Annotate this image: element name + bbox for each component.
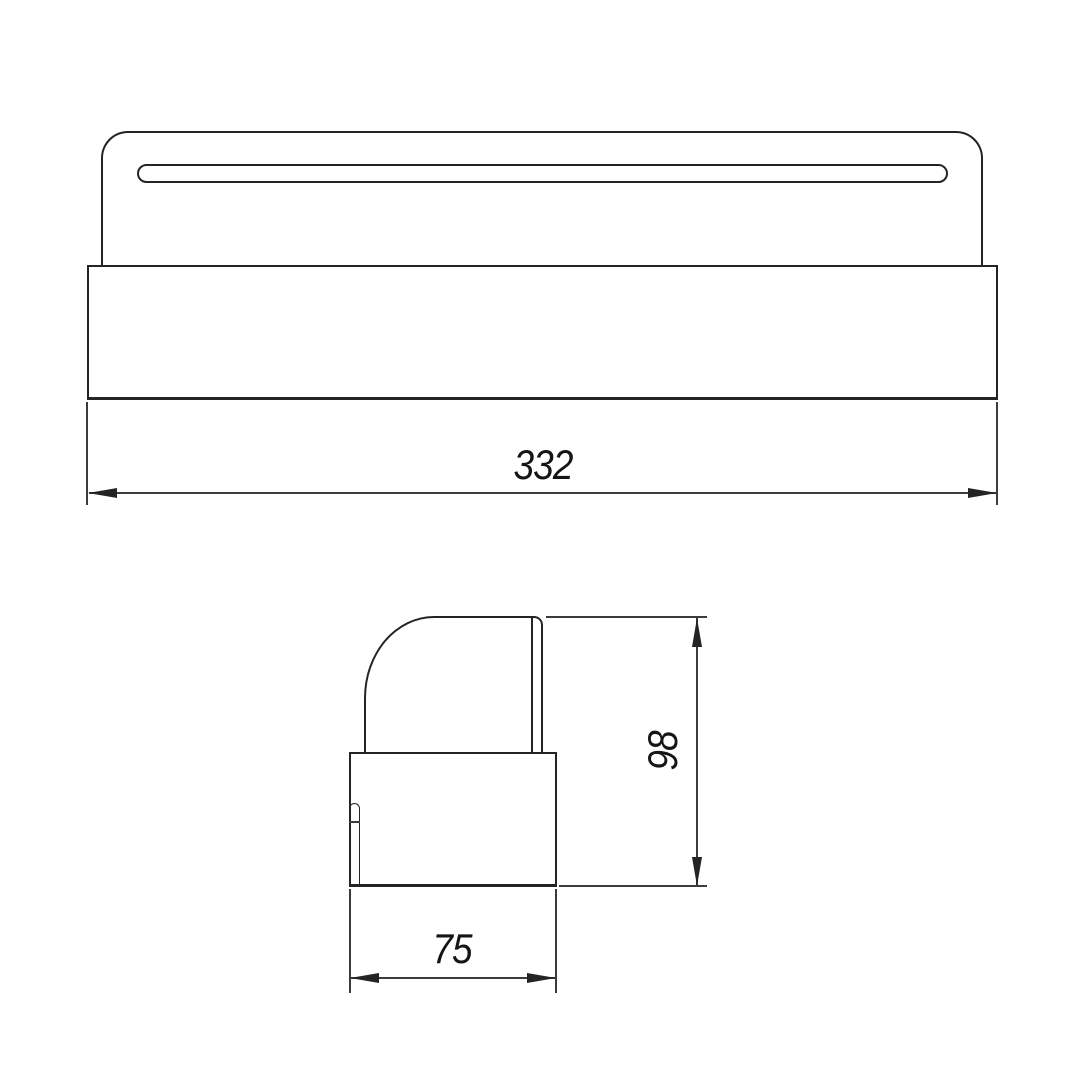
inner-tab-edge-line bbox=[349, 821, 360, 823]
dimension-line-width bbox=[89, 492, 996, 494]
arrowhead-up-icon bbox=[692, 618, 702, 647]
dimension-line-height bbox=[696, 618, 698, 886]
front-plate-slot bbox=[137, 164, 948, 183]
arrowhead-left-icon bbox=[88, 488, 117, 498]
dimension-label-depth: 75 bbox=[432, 928, 471, 970]
dimension-line-depth bbox=[351, 977, 555, 979]
dimension-label-width: 332 bbox=[513, 444, 572, 486]
arrowhead-right-icon bbox=[968, 488, 997, 498]
side-inner-tab-outline bbox=[349, 803, 360, 887]
extension-line-bottom bbox=[559, 885, 707, 887]
arrowhead-left-icon bbox=[350, 973, 379, 983]
side-cap-outline bbox=[364, 616, 533, 752]
drawing-canvas: 332 98 75 bbox=[0, 0, 1080, 1080]
side-plate-edge-outline bbox=[531, 616, 543, 752]
front-top-plate-outline bbox=[101, 131, 983, 267]
extension-line-top bbox=[546, 616, 707, 618]
dimension-label-height: 98 bbox=[642, 731, 684, 770]
arrowhead-right-icon bbox=[527, 973, 556, 983]
arrowhead-down-icon bbox=[692, 857, 702, 886]
side-base-body-outline bbox=[349, 752, 557, 887]
front-base-body-outline bbox=[87, 265, 998, 400]
